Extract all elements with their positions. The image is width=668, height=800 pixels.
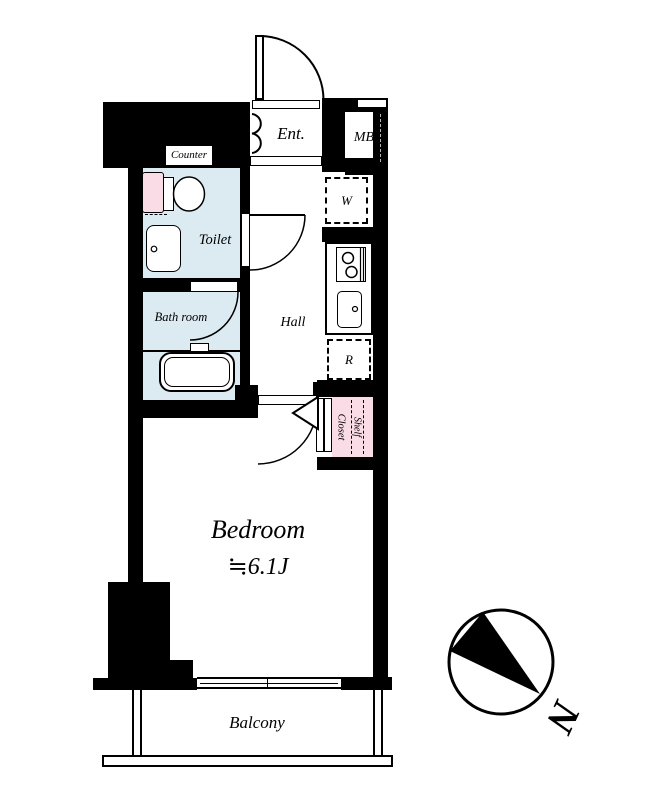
toilet-door-leaf [241, 213, 250, 267]
toilet-cabinet-dash [145, 214, 167, 215]
entrance-door-arc [260, 36, 324, 100]
toilet-tank [163, 177, 174, 211]
balcony-wall-left [132, 690, 142, 756]
toilet-hand-sink [146, 225, 181, 272]
pillar [108, 582, 170, 678]
toilet-door-arc [250, 215, 305, 270]
entrance-step [250, 156, 322, 166]
balcony-label: Balcony [187, 710, 327, 734]
wall-bath-bottom [128, 400, 250, 418]
fridge-space: R [327, 339, 371, 380]
closet-label: Closet [336, 414, 347, 441]
shelf-label: Shelf [352, 417, 363, 437]
entrance-label: Ent. [262, 120, 320, 146]
wall-bottom-left [93, 678, 197, 690]
meter-box-dashed-line [380, 114, 381, 162]
closet-label-box: Closet [333, 398, 349, 456]
bath-door-leaf [190, 281, 238, 292]
meter-box-slot [358, 100, 386, 107]
bathroom-label: Bath room [152, 300, 210, 334]
shoes-closet-door-icon [252, 114, 261, 153]
balcony-wall-right [373, 690, 383, 756]
balcony-rail [102, 755, 393, 767]
compass-north-label: N [523, 677, 603, 757]
stove [336, 247, 366, 282]
bedroom-label: Bedroom [188, 512, 328, 548]
compass-needle-icon [450, 612, 540, 694]
bedroom-door-arc [258, 405, 317, 464]
bath-counter-tab [190, 343, 209, 352]
entrance-threshold [252, 100, 320, 109]
window-middle-line [200, 683, 338, 684]
pillar-step [170, 660, 193, 678]
kitchen-sink [337, 291, 362, 328]
bedroom-door-leaf [258, 395, 317, 405]
wall-bottom-right [341, 677, 392, 690]
wall-below-washer [322, 227, 373, 242]
closet-slider-2 [324, 398, 332, 452]
entrance-door-leaf [255, 35, 264, 100]
wall-hall-bottom-left [235, 385, 258, 418]
wall-right [373, 112, 388, 677]
bedroom-size-label: ≒6.1J [188, 552, 328, 582]
washer-space: W [325, 177, 368, 224]
floor-plan: Shoes Clo Ent. MB Counter Toilet W R Hal… [0, 0, 668, 800]
bathtub-inner [164, 357, 230, 387]
toilet-cabinet [142, 172, 164, 213]
shelf-label-box: Shelf [350, 398, 364, 456]
toilet-label: Toilet [189, 231, 241, 249]
bathtub [159, 352, 235, 392]
hall-label: Hall [268, 314, 318, 332]
window-center-tick [267, 679, 268, 687]
wall-above-closet [317, 380, 373, 397]
wall-below-closet [317, 457, 373, 470]
bedroom-window [197, 677, 341, 689]
closet-slider-1 [316, 398, 324, 452]
counter-label: Counter [166, 146, 212, 165]
